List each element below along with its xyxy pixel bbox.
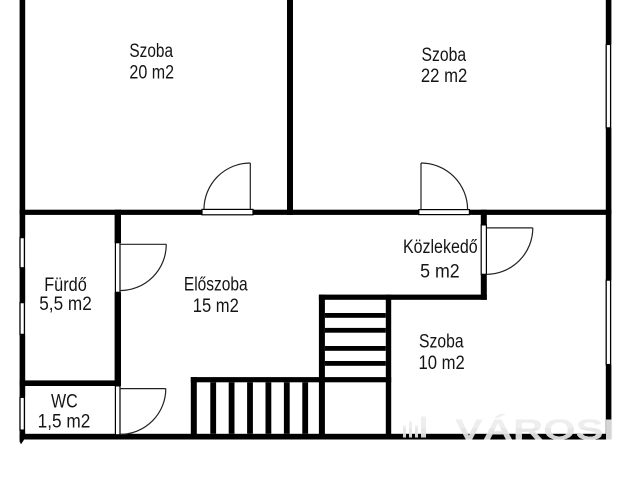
svg-text:10 m2: 10 m2 [418,353,464,374]
svg-text:1,5 m2: 1,5 m2 [38,412,91,433]
svg-text:WC: WC [51,391,78,412]
svg-text:20 m2: 20 m2 [129,62,174,83]
svg-text:15 m2: 15 m2 [193,296,239,317]
svg-text:5 m2: 5 m2 [420,262,460,283]
svg-text:Szoba: Szoba [422,45,467,66]
svg-text:Szoba: Szoba [419,331,464,352]
svg-text:Szoba: Szoba [129,41,173,62]
svg-text:Előszoba: Előszoba [184,274,248,295]
svg-text:Fürdő: Fürdő [44,275,87,296]
svg-text:Közlekedő: Közlekedő [403,237,478,258]
svg-text:22 m2: 22 m2 [421,66,467,87]
svg-text:5,5 m2: 5,5 m2 [39,294,92,315]
